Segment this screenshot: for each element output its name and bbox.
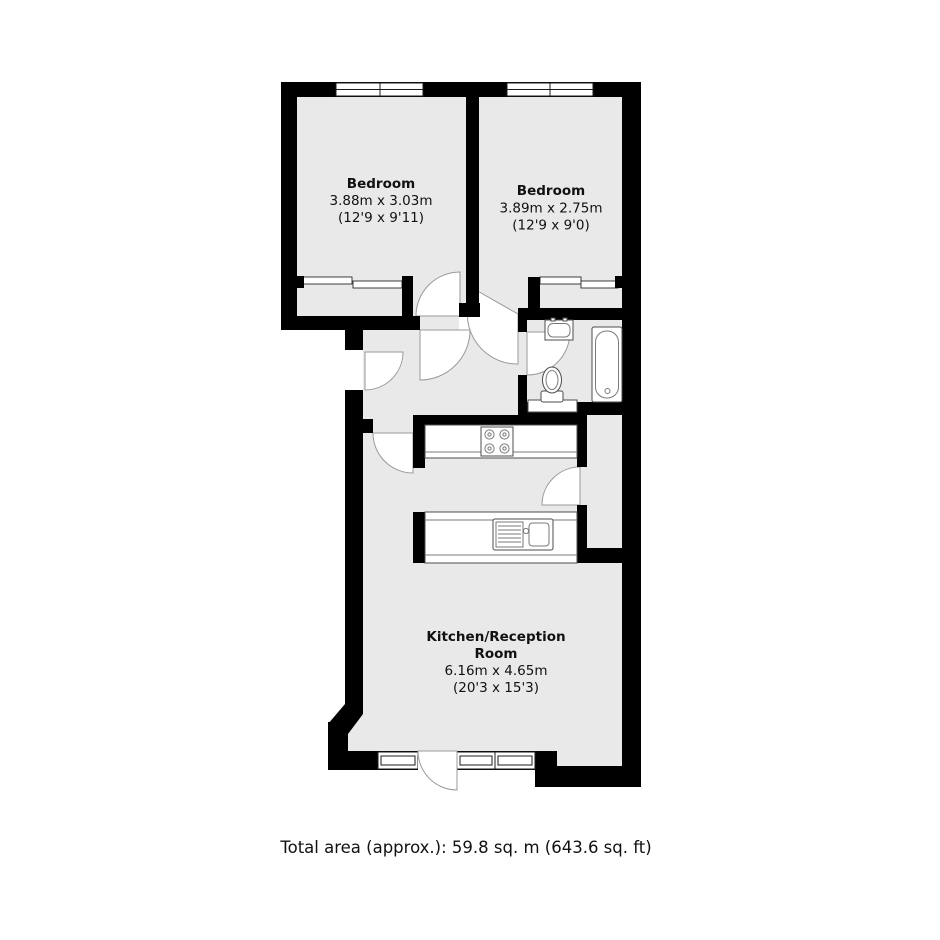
floor-plan-page: Bedroom 3.88m x 3.03m (12'9 x 9'11) Bedr… bbox=[0, 0, 940, 940]
bathroom-wall-lower bbox=[518, 375, 527, 402]
bedroom-1-name: Bedroom bbox=[347, 176, 415, 192]
bedroom-1-doorway bbox=[420, 316, 459, 330]
kitchen-left-wall-upper bbox=[413, 425, 425, 468]
bedroom-1-wardrobe-door-icon bbox=[353, 281, 402, 288]
bedroom-2-dims-m: 3.89m x 2.75m bbox=[500, 201, 603, 217]
reception-window-1-icon bbox=[378, 752, 418, 769]
bedroom-divider-wall bbox=[466, 97, 479, 317]
exterior-wall-left-upper bbox=[281, 82, 297, 330]
exterior-wall-right-lower bbox=[622, 563, 641, 787]
bedroom-1-dims-m: 3.88m x 3.03m bbox=[330, 193, 433, 209]
bedroom-2-wardrobe-cap bbox=[615, 276, 623, 288]
bedroom-2-dims-ft: (12'9 x 9'0) bbox=[512, 218, 589, 234]
bathroom-wall-upper bbox=[518, 320, 527, 332]
floor-plan: Bedroom 3.88m x 3.03m (12'9 x 9'11) Bedr… bbox=[0, 0, 940, 940]
exterior-wall-bottom-right bbox=[557, 766, 641, 787]
bedroom-divider-end bbox=[459, 303, 480, 317]
kitchen-reception-name-line1: Kitchen/Reception bbox=[426, 629, 565, 645]
reception-window-2-icon bbox=[457, 752, 495, 769]
bathroom-doorway bbox=[518, 332, 527, 375]
kitchen-left-wall-lower bbox=[413, 512, 425, 563]
kitchen-reception-dims-m: 6.16m x 4.65m bbox=[445, 663, 548, 679]
hallway-bottom-wall bbox=[413, 415, 577, 425]
kitchen-corridor-gap bbox=[413, 468, 425, 512]
bedroom-1-dims-ft: (12'9 x 9'11) bbox=[338, 210, 424, 226]
alcove-left-wall-lower bbox=[577, 505, 587, 563]
alcove-left-wall-upper bbox=[577, 415, 587, 467]
washbasin-tap-left bbox=[551, 318, 555, 321]
bedroom-2-wardrobe-door-icon bbox=[581, 281, 618, 288]
exterior-wall-left-mid bbox=[345, 390, 363, 714]
entrance-wall-stub bbox=[345, 330, 363, 350]
alcove-floor bbox=[587, 415, 622, 548]
bedroom-1-bottom-wall bbox=[281, 316, 420, 330]
exterior-wall-left-bottom bbox=[328, 722, 348, 751]
bedroom-2-name: Bedroom bbox=[517, 183, 585, 199]
bedroom-2-wardrobe-jamb bbox=[528, 277, 540, 320]
kitchen-door-stub bbox=[357, 419, 373, 433]
reception-window-3-icon bbox=[495, 752, 535, 769]
bedroom-1-wardrobe-jamb bbox=[402, 276, 413, 316]
bedroom-1-wardrobe-door-icon bbox=[299, 277, 352, 284]
exterior-wall-right-upper bbox=[622, 82, 641, 548]
total-area-text: Total area (approx.): 59.8 sq. m (643.6 … bbox=[279, 838, 651, 857]
exterior-wall-bottom-step bbox=[535, 751, 557, 787]
patio-door-arc-icon bbox=[418, 751, 457, 790]
bedroom-1-wardrobe-cap bbox=[296, 276, 304, 288]
kitchen-reception-dims-ft: (20'3 x 15'3) bbox=[453, 680, 539, 696]
bedroom-2-wardrobe-door-icon bbox=[540, 277, 581, 284]
washbasin-tap-right bbox=[563, 318, 567, 321]
kitchen-reception-name-line2: Room bbox=[474, 646, 517, 662]
